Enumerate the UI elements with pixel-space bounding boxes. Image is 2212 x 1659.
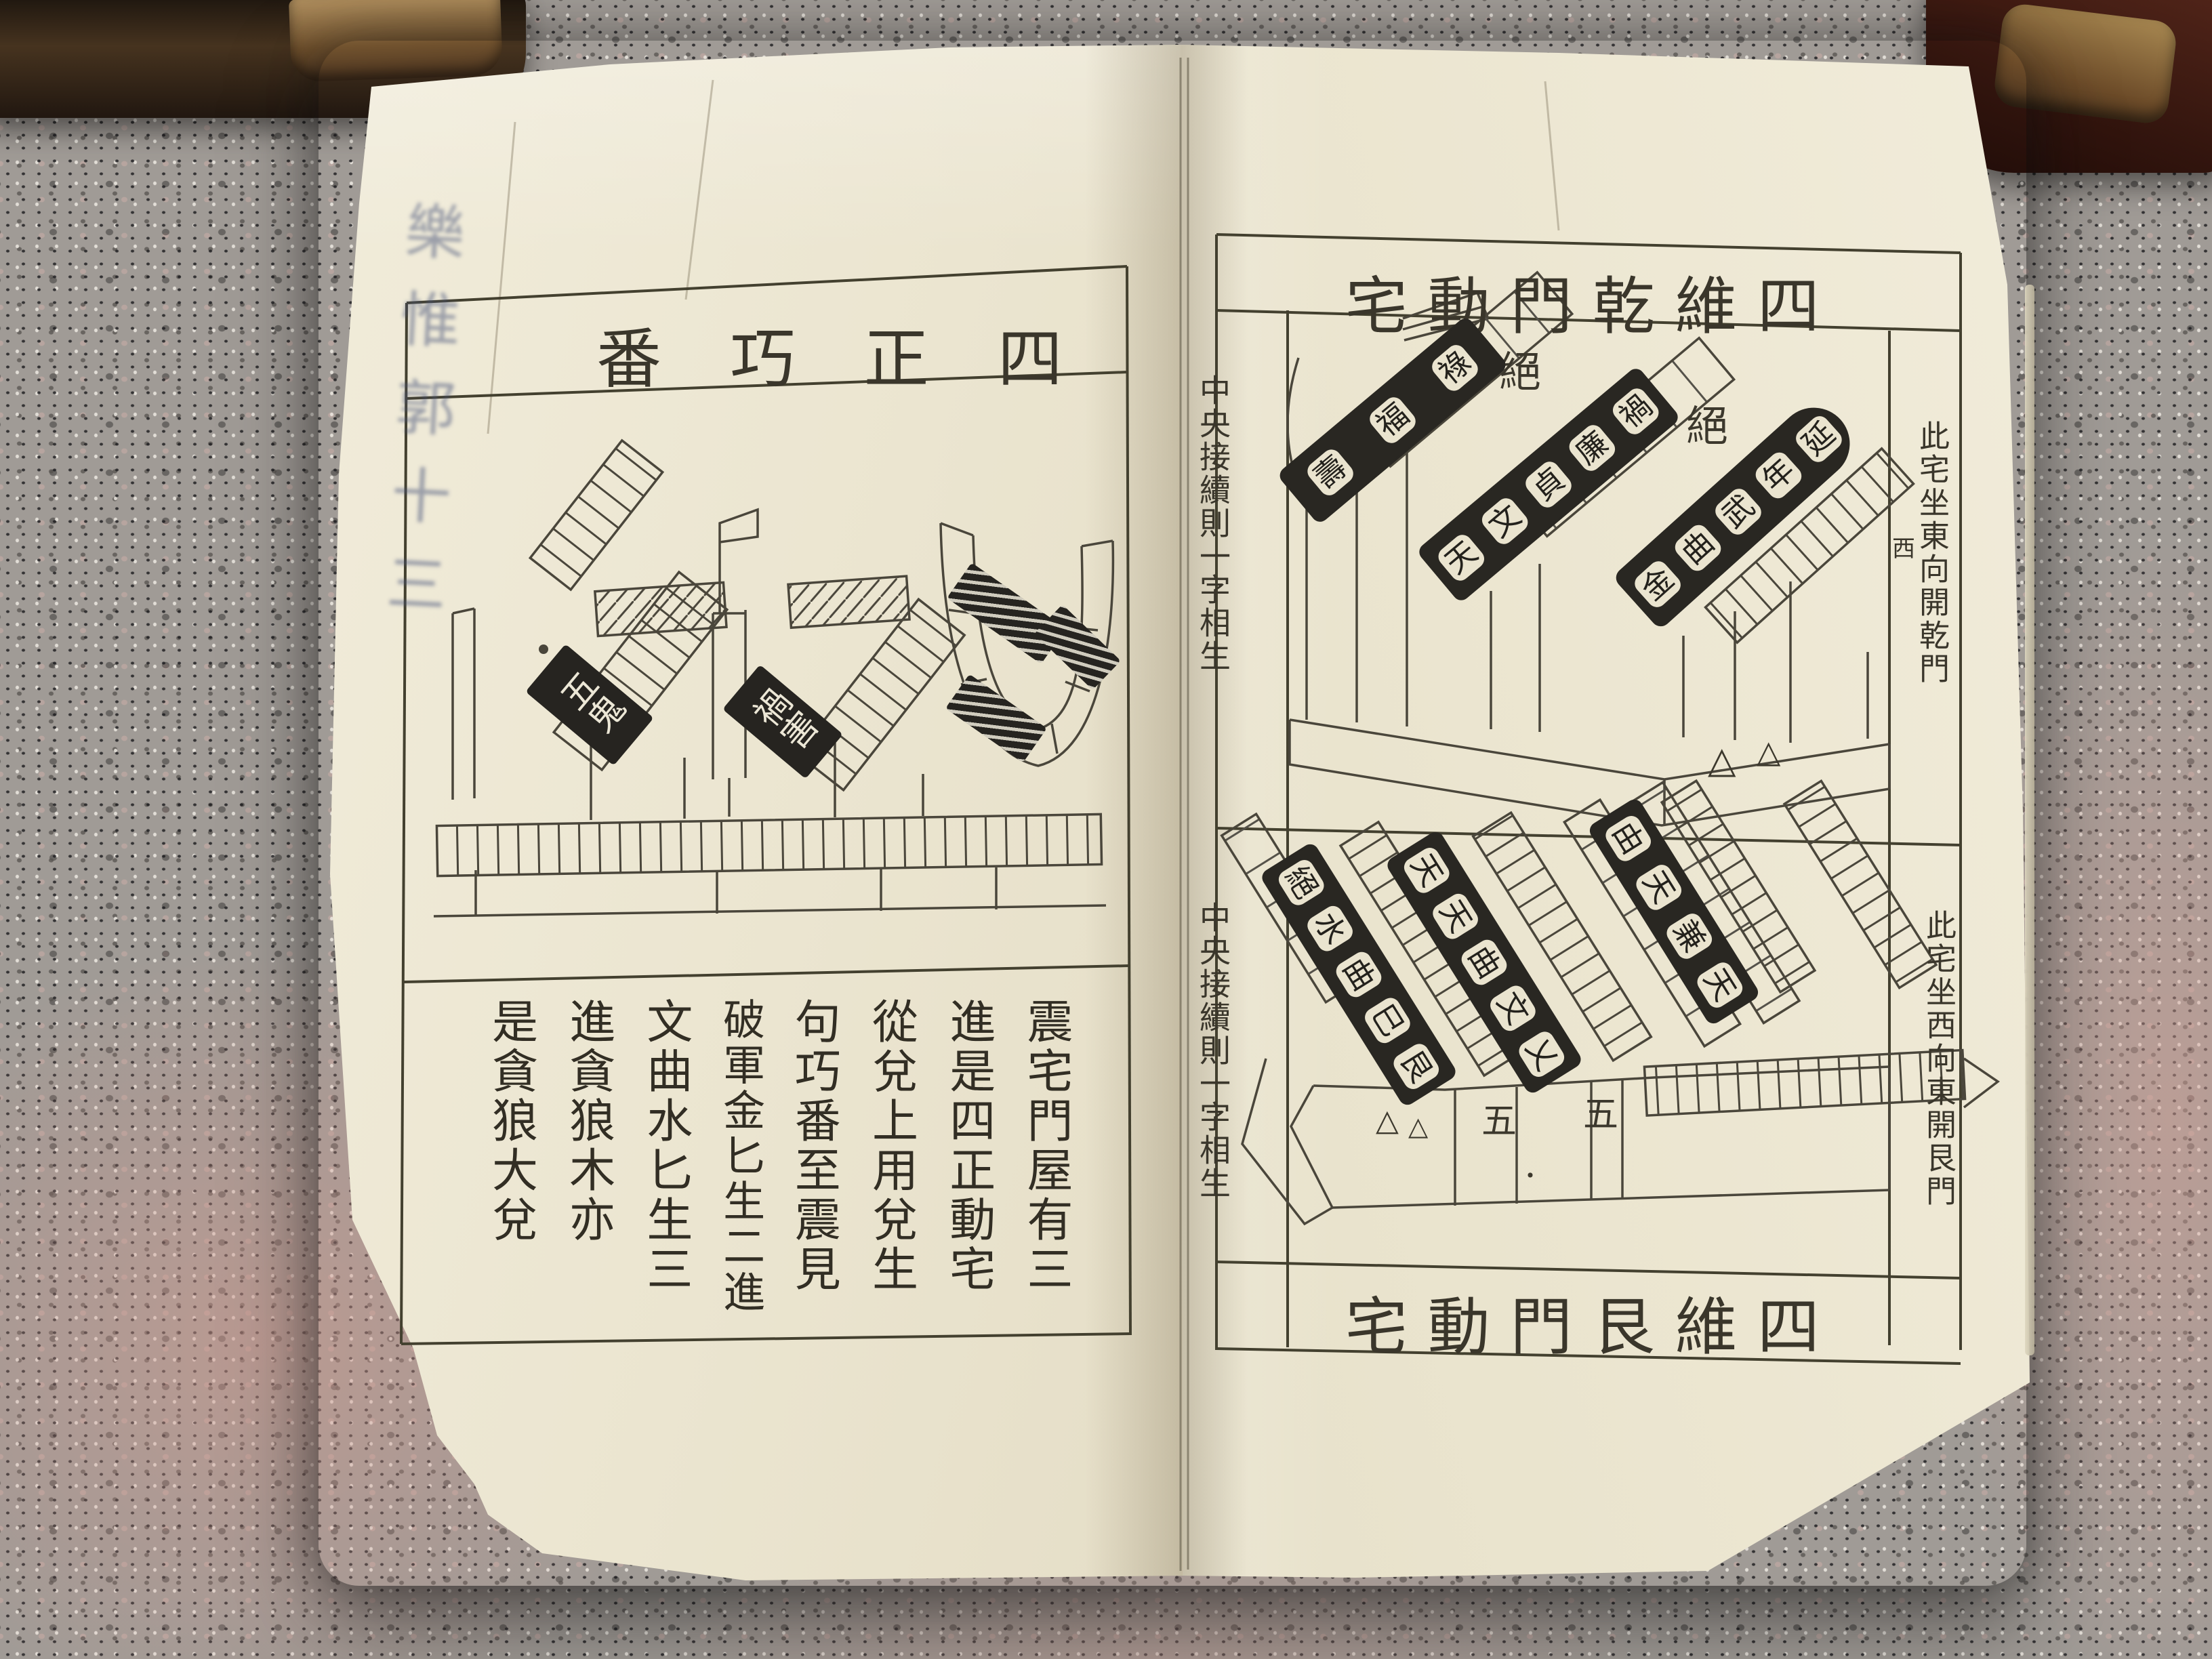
side-note-gen: 此宅坐西向東開艮門 xyxy=(1917,909,1961,1208)
right-page-bottom-title: 宅動門艮維四 xyxy=(1345,1277,1820,1367)
page-stack-edge xyxy=(2025,285,2034,1355)
courtyard-triangle: △ xyxy=(1757,733,1780,770)
text-column: 破軍金匕生二進 xyxy=(704,998,775,1377)
room-label-five: 五 xyxy=(1583,1086,1618,1136)
text-column: 從兌上用兌生 xyxy=(852,998,929,1377)
courtyard-triangle: △ xyxy=(1376,1103,1399,1138)
left-page-text-block: 震宅門屋有三 進是四正動宅 從兌上用兌生 句巧番至震見 破軍金匕生二進 文曲水匕… xyxy=(434,998,1084,1377)
text-column: 進是四正動宅 xyxy=(930,998,1007,1377)
text-column: 句巧番至震見 xyxy=(775,998,852,1377)
jue-label: 絕 xyxy=(1686,392,1728,453)
text-column: 進貪狼木亦 xyxy=(549,998,626,1377)
room-label-five: 五 xyxy=(1481,1092,1517,1143)
photo-of-open-book: 番巧正四 樂惟郭十三 五鬼 禍害 震宅門屋有三 進是四正動宅 從兌上用兌生 句巧… xyxy=(0,0,2212,1659)
text-column: 是貪狼大兌 xyxy=(472,998,549,1377)
text-column: 震宅門屋有三 xyxy=(1007,998,1084,1377)
jue-label: 絕 xyxy=(1499,337,1541,398)
courtyard-dot: · xyxy=(1523,1152,1537,1199)
side-note-qian: 此宅坐東向開乾門 xyxy=(1910,420,1954,686)
right-page-top-title: 宅動門乾維四 xyxy=(1345,256,1820,346)
left-page-title: 番巧正四 xyxy=(596,306,1063,401)
courtyard-triangle: △ xyxy=(1708,739,1736,781)
gutter-note-bottom: 中央接續則一字相生 xyxy=(1190,901,1235,1200)
gutter-note-top: 中央接續則一字相生 xyxy=(1190,374,1235,673)
courtyard-triangle: △ xyxy=(1408,1111,1428,1142)
side-note-qian-small: 西 xyxy=(1892,530,1915,563)
text-column: 文曲水匕生三 xyxy=(627,998,704,1377)
